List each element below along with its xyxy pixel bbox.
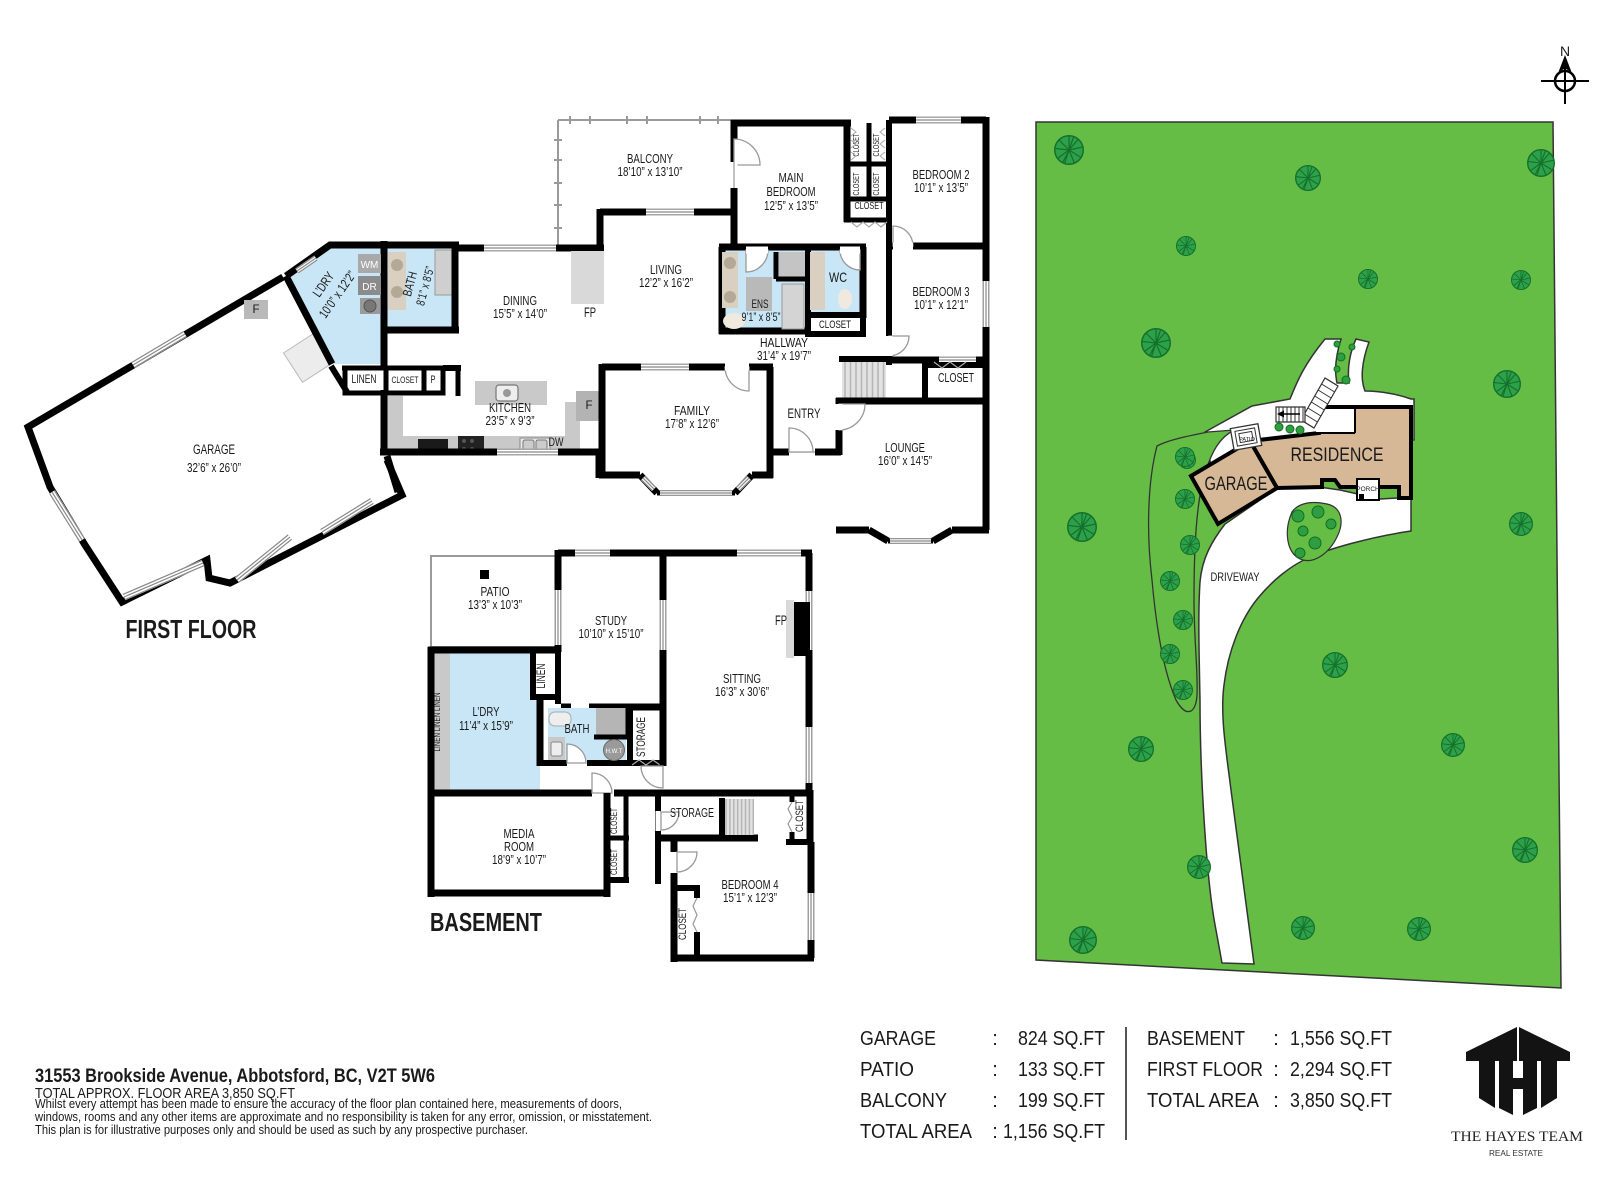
svg-text:199 SQ.FT: 199 SQ.FT	[1018, 1090, 1105, 1112]
svg-text:CLOSET: CLOSET	[872, 172, 881, 195]
svg-text:LINEN: LINEN	[536, 664, 548, 689]
svg-text:CLOSET: CLOSET	[872, 133, 881, 156]
svg-text:2,294 SQ.FT: 2,294 SQ.FT	[1290, 1059, 1392, 1081]
svg-text:TOTAL AREA: TOTAL AREA	[860, 1121, 973, 1143]
svg-text:THE HAYES TEAM: THE HAYES TEAM	[1451, 1129, 1583, 1145]
svg-text:FIRST FLOOR: FIRST FLOOR	[1147, 1059, 1263, 1081]
svg-text:STORAGE: STORAGE	[670, 806, 714, 820]
svg-text:WM: WM	[361, 260, 379, 271]
svg-text:9’1” x 8’5”: 9’1” x 8’5”	[742, 312, 781, 324]
svg-text:FIRST FLOOR: FIRST FLOOR	[126, 614, 257, 644]
svg-text:15’5” x 14’0”: 15’5” x 14’0”	[493, 306, 547, 321]
svg-text:CLOSET: CLOSET	[855, 201, 884, 212]
svg-text:18’9” x 10’7”: 18’9” x 10’7”	[492, 852, 546, 867]
svg-text:16’0” x 14’5”: 16’0” x 14’5”	[878, 453, 932, 468]
svg-text:BASEMENT: BASEMENT	[430, 907, 542, 937]
svg-text:PATIO: PATIO	[860, 1059, 914, 1081]
svg-text:CLOSET: CLOSET	[392, 375, 419, 386]
svg-text:1,156 SQ.FT: 1,156 SQ.FT	[1003, 1121, 1105, 1143]
svg-text:GARAGE: GARAGE	[860, 1028, 936, 1050]
svg-text:This plan is for illustrative: This plan is for illustrative purposes o…	[35, 1122, 528, 1137]
svg-text:PATIO: PATIO	[1239, 437, 1255, 443]
svg-text:FP: FP	[775, 613, 787, 628]
svg-text::: :	[992, 1121, 998, 1143]
svg-text::: :	[1273, 1028, 1279, 1050]
svg-text:ENS: ENS	[752, 297, 769, 311]
svg-text:WC: WC	[829, 269, 847, 285]
svg-text:31’4” x 19’7”: 31’4” x 19’7”	[757, 348, 811, 363]
svg-text:23’5” x 9’3”: 23’5” x 9’3”	[486, 413, 535, 428]
svg-text:1,556 SQ.FT: 1,556 SQ.FT	[1290, 1028, 1392, 1050]
svg-text:133 SQ.FT: 133 SQ.FT	[1018, 1059, 1105, 1081]
svg-text:TOTAL AREA: TOTAL AREA	[1147, 1090, 1260, 1112]
svg-text:10’1” x 12’1”: 10’1” x 12’1”	[914, 297, 968, 312]
svg-text:MAIN: MAIN	[779, 170, 804, 185]
svg-text::: :	[1273, 1090, 1279, 1112]
svg-text:31553 Brookside Avenue, Abbots: 31553 Brookside Avenue, Abbotsford, BC, …	[35, 1066, 435, 1087]
svg-text:18’10” x 13’10”: 18’10” x 13’10”	[618, 164, 683, 179]
svg-text:GARAGE: GARAGE	[193, 442, 235, 457]
svg-text:H.W.T: H.W.T	[606, 749, 623, 755]
svg-text:FP: FP	[584, 305, 596, 320]
svg-text:F: F	[252, 304, 259, 316]
svg-text::: :	[992, 1090, 998, 1112]
svg-text:ENTRY: ENTRY	[788, 406, 821, 421]
svg-text:CLOSET: CLOSET	[609, 849, 619, 875]
svg-text:CLOSET: CLOSET	[609, 808, 619, 834]
svg-text:17’8” x 12’6”: 17’8” x 12’6”	[665, 416, 719, 431]
svg-text:GARAGE: GARAGE	[1205, 473, 1268, 495]
svg-text:REAL ESTATE: REAL ESTATE	[1489, 1149, 1543, 1158]
svg-text:12’5” x 13’5”: 12’5” x 13’5”	[764, 198, 818, 213]
svg-text:BEDROOM: BEDROOM	[767, 184, 816, 199]
svg-text:STORAGE: STORAGE	[636, 717, 648, 757]
svg-text:L’DRY: L’DRY	[473, 704, 500, 719]
svg-text:RESIDENCE: RESIDENCE	[1291, 444, 1384, 466]
svg-text:CLOSET: CLOSET	[852, 172, 861, 195]
svg-text:LINEN: LINEN	[352, 374, 377, 386]
svg-text:32’6” x 26’0”: 32’6” x 26’0”	[187, 460, 241, 475]
svg-text:BASEMENT: BASEMENT	[1147, 1028, 1245, 1050]
svg-text:PORCH: PORCH	[1356, 486, 1380, 493]
svg-text:P: P	[431, 374, 436, 386]
svg-text:F: F	[585, 400, 592, 412]
svg-text:BALCONY: BALCONY	[860, 1090, 947, 1112]
svg-text:DW: DW	[549, 437, 564, 449]
svg-text:BATH: BATH	[565, 722, 590, 736]
svg-text::: :	[1273, 1059, 1279, 1081]
svg-text:12’2” x 16’2”: 12’2” x 16’2”	[639, 275, 693, 290]
svg-text:13’3” x 10’3”: 13’3” x 10’3”	[468, 597, 522, 612]
svg-text:10’1” x 13’5”: 10’1” x 13’5”	[914, 180, 968, 195]
svg-text:10’10” x 15’10”: 10’10” x 15’10”	[579, 626, 644, 641]
svg-text:CLOSET: CLOSET	[819, 319, 851, 331]
svg-text::: :	[992, 1028, 998, 1050]
svg-text:15’1” x 12’3”: 15’1” x 12’3”	[723, 890, 777, 905]
svg-text:CLOSET: CLOSET	[938, 371, 974, 385]
svg-text:3,850 SQ.FT: 3,850 SQ.FT	[1290, 1090, 1392, 1112]
svg-text:824 SQ.FT: 824 SQ.FT	[1018, 1028, 1105, 1050]
svg-text:CLOSET: CLOSET	[677, 908, 689, 940]
svg-text:DR: DR	[362, 282, 376, 293]
svg-text:CLOSET: CLOSET	[794, 800, 806, 832]
svg-text::: :	[992, 1059, 998, 1081]
svg-text:16’3” x 30’6”: 16’3” x 30’6”	[715, 684, 769, 699]
svg-text:CLOSET: CLOSET	[852, 133, 861, 156]
svg-text:11’4” x 15’9”: 11’4” x 15’9”	[459, 718, 513, 733]
svg-text:DRIVEWAY: DRIVEWAY	[1211, 572, 1260, 584]
